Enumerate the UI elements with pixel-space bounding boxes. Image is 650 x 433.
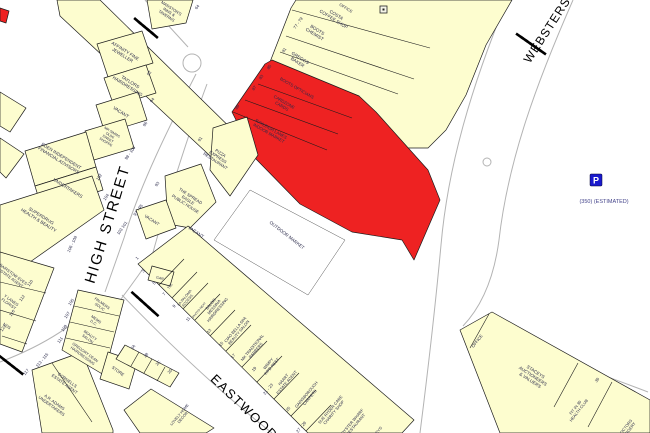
map-canvas: MARSTON'SINNS &TAVERNSAFFINITY FINEJEWEL… (0, 0, 650, 433)
road-island (483, 158, 491, 166)
street-number: 117 (22, 367, 31, 376)
street-number: 1 (134, 255, 140, 261)
building-left-stub-1 (0, 92, 26, 132)
street-number: 93 (154, 180, 161, 187)
street-number: 111 (56, 335, 64, 344)
street-number: 107 (63, 310, 71, 319)
building-lovely-home (124, 389, 214, 433)
building-staceys-band (460, 312, 650, 433)
parking-icon: P (590, 174, 602, 186)
websters-way-street-label: WEBSTERS WAY (521, 0, 592, 65)
zebra-bar (151, 309, 159, 317)
parking-letter: P (593, 176, 599, 186)
building-red-fragment (0, 8, 9, 23)
mini-roundabout (183, 54, 201, 72)
parking-capacity-note: (350) (ESTIMATED) (579, 199, 628, 205)
street-number: 64 (194, 3, 201, 10)
map-viewport: MARSTON'SINNS &TAVERNSAFFINITY FINEJEWEL… (0, 0, 650, 433)
crossing-eastwood-road-icon (131, 291, 160, 317)
postbox-icon (380, 6, 387, 13)
building-left-stub-2 (0, 138, 24, 178)
street-number: 106 - 108 (66, 234, 78, 253)
zebra-bar (150, 31, 159, 39)
unit-2a-label: 2A (129, 343, 136, 350)
